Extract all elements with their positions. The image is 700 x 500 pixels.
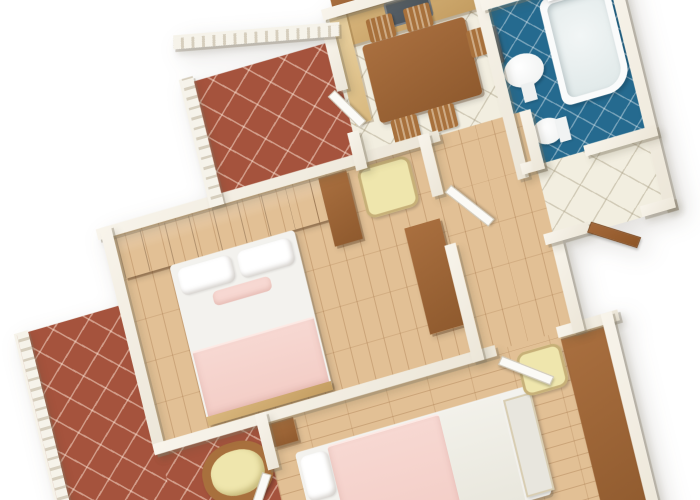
front-door	[587, 222, 641, 248]
bathtub-basin	[546, 0, 625, 99]
bed-pillow	[236, 237, 297, 280]
apartment-3d-floor-plan	[0, 0, 700, 500]
floor-plan-projection	[0, 0, 700, 500]
